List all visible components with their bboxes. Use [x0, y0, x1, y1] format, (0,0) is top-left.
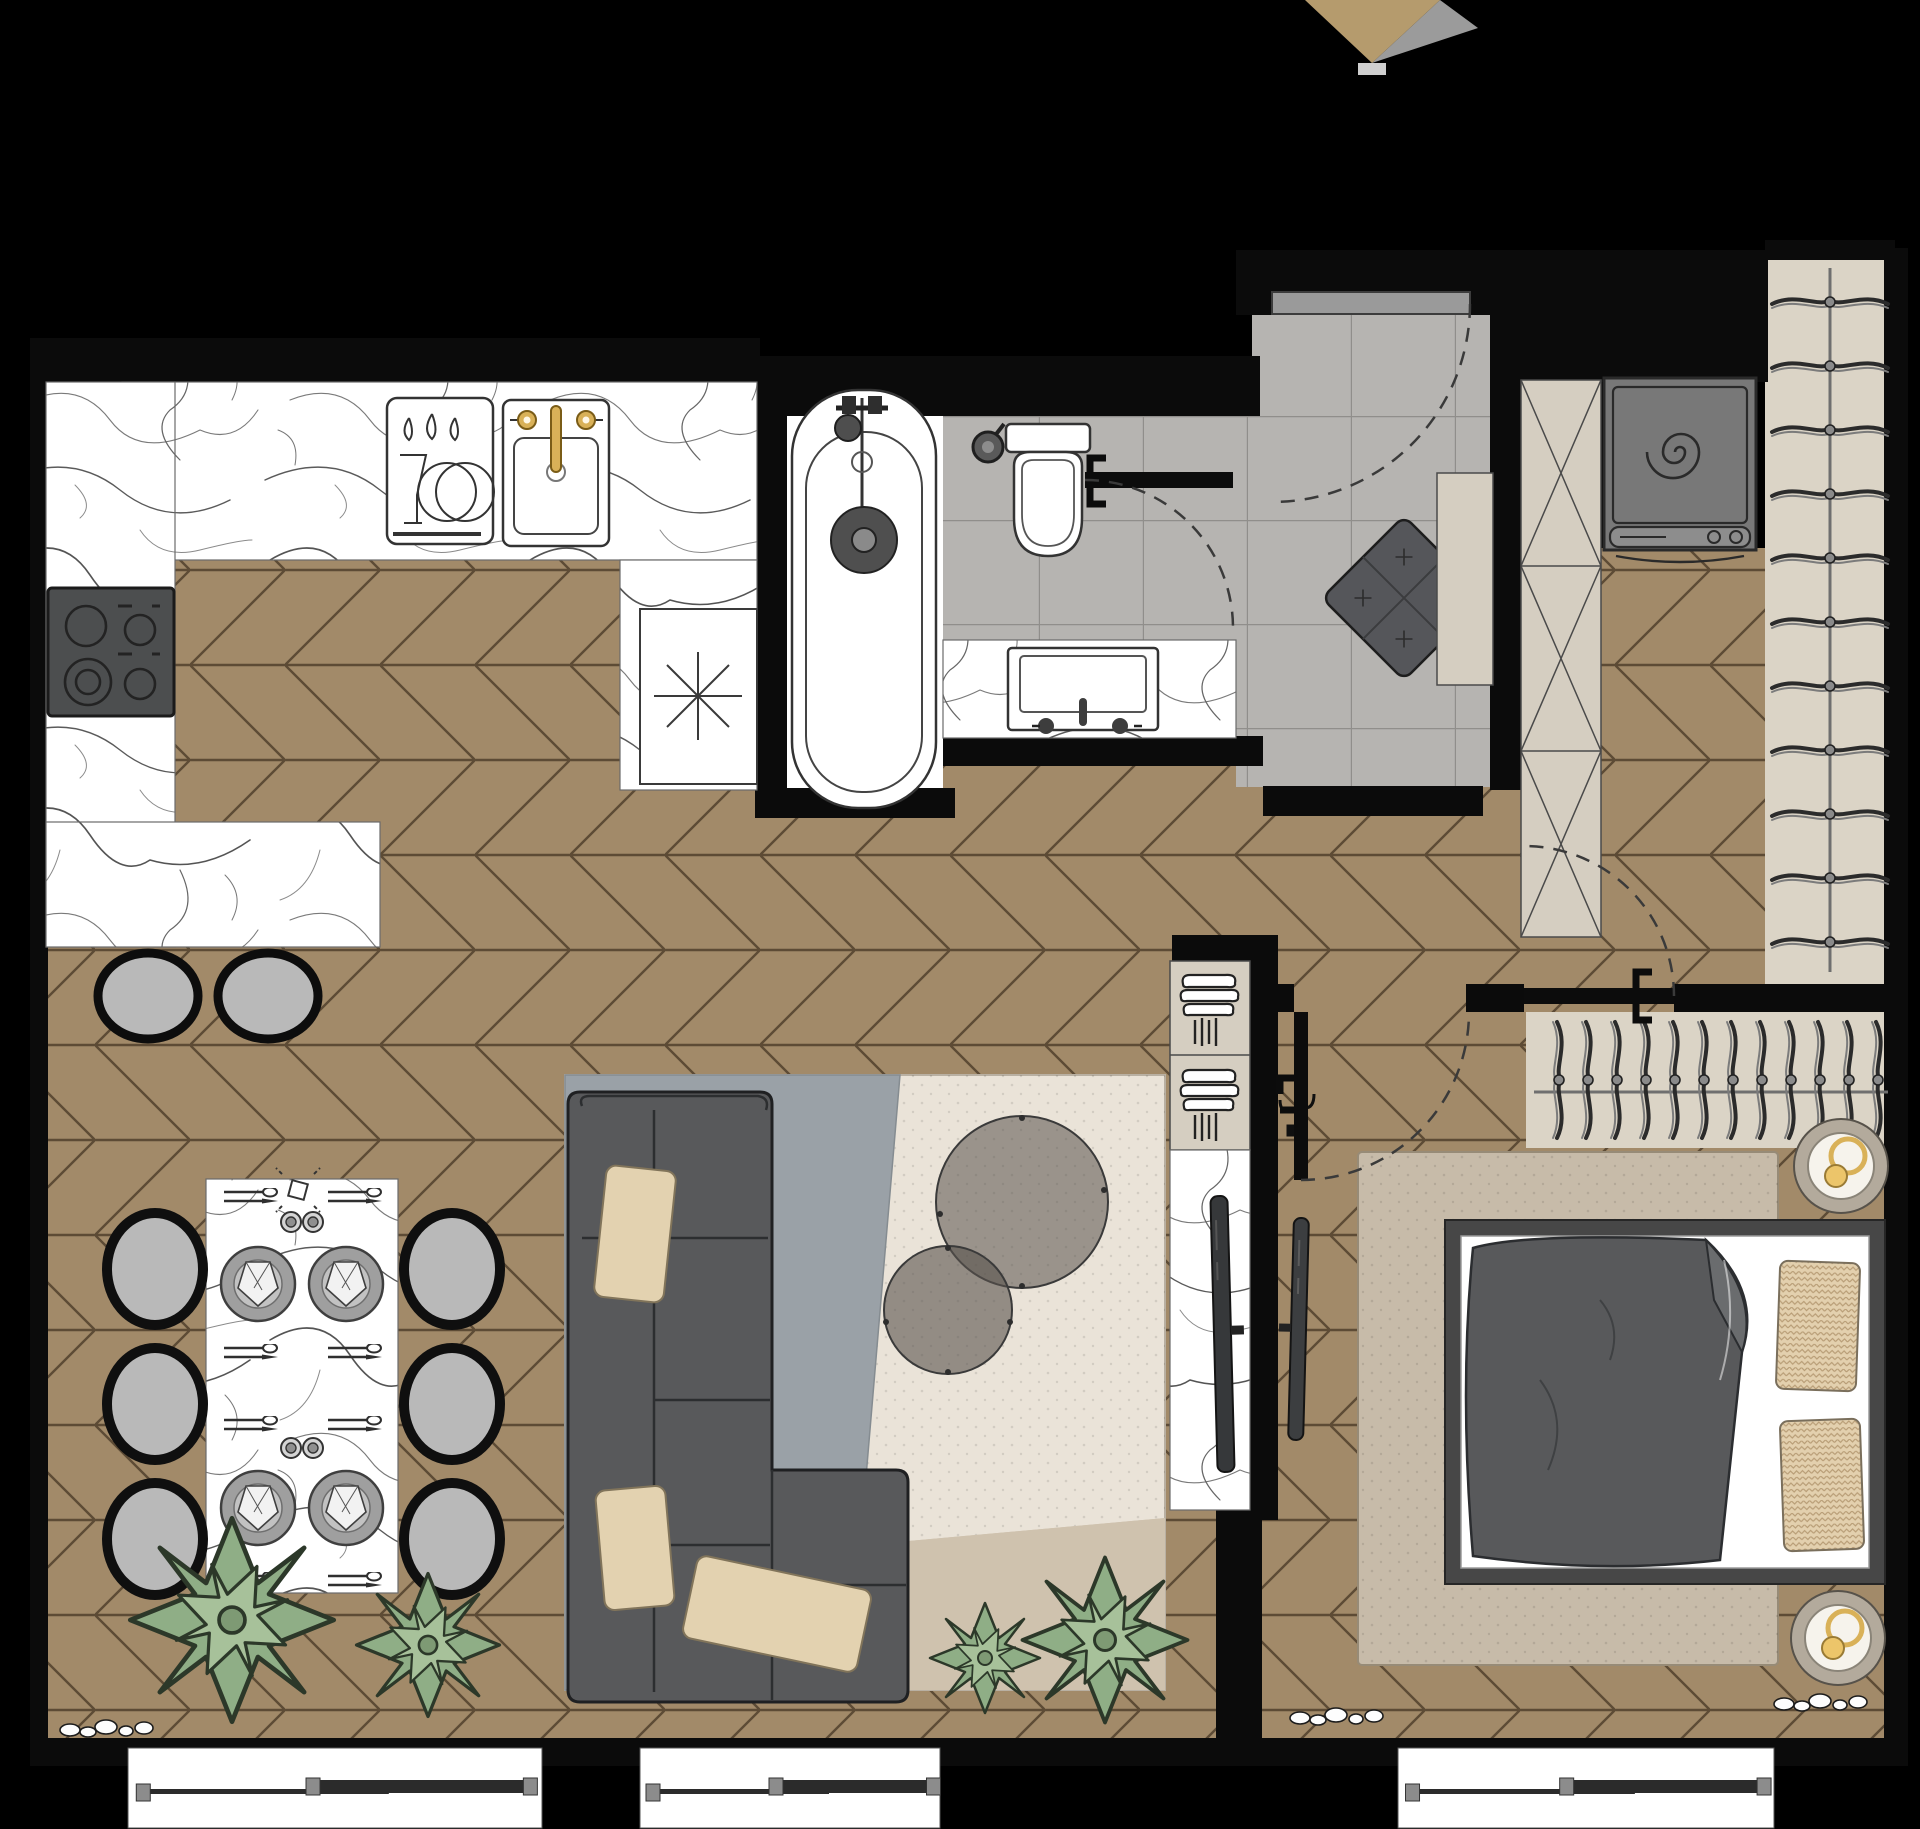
plant-icon	[1023, 1558, 1188, 1723]
dining-chair	[404, 1483, 500, 1595]
sink-icon	[503, 400, 609, 546]
bedside-lamp-icon	[1794, 1119, 1888, 1213]
bedside-lamp-icon	[1791, 1591, 1885, 1685]
kitchen-cabinet-asterisk	[640, 609, 757, 784]
floor-plan	[0, 0, 1920, 1829]
floor-wardrobe-room	[1601, 548, 1765, 958]
window-frame-cap	[769, 1778, 783, 1795]
plant-icon	[357, 1574, 500, 1717]
bed-duvet	[1466, 1237, 1747, 1566]
toilet-icon	[1006, 424, 1090, 556]
tv-wall-shelf	[1170, 961, 1250, 1150]
bed-pillow	[1780, 1419, 1864, 1552]
plant-icon	[930, 1603, 1040, 1713]
dining-chair	[404, 1213, 500, 1325]
dish-rack-icon	[387, 398, 494, 544]
place-setting-icon	[309, 1247, 383, 1321]
bar-stool	[98, 953, 198, 1039]
dining-chair	[107, 1213, 203, 1325]
bed-pillow	[1776, 1261, 1860, 1392]
window-sash	[1563, 1780, 1762, 1793]
place-setting-icon	[221, 1247, 295, 1321]
entry-console	[1437, 473, 1493, 685]
entry-door	[1272, 292, 1470, 314]
washing-machine-icon	[1604, 378, 1756, 562]
hob-icon	[48, 588, 174, 716]
bathtub-icon	[792, 390, 936, 808]
window	[1398, 1748, 1774, 1828]
bed	[1445, 1220, 1885, 1584]
floor-entry-vestibule	[1252, 315, 1492, 381]
window-sash	[310, 1780, 529, 1793]
kitchen-peninsula	[46, 822, 380, 947]
window-frame-cap	[1757, 1778, 1771, 1795]
plant-icon	[130, 1518, 334, 1722]
window	[640, 1748, 941, 1828]
asterisk-icon	[654, 652, 742, 740]
window-sash	[772, 1780, 931, 1793]
bar-stool	[218, 953, 318, 1039]
window-frame-cap	[927, 1778, 941, 1795]
wardrobe-x-cabinets	[1521, 380, 1601, 937]
bathroom-vanity	[943, 640, 1236, 738]
window	[128, 1748, 542, 1828]
place-setting-icon	[309, 1471, 383, 1545]
floor-plan-canvas	[0, 0, 1920, 1829]
window-frame-cap	[136, 1784, 150, 1801]
window-frame-cap	[646, 1784, 660, 1801]
window-frame-cap	[1406, 1784, 1420, 1801]
window-frame-cap	[306, 1778, 320, 1795]
location-marker-icon	[1305, 0, 1478, 75]
dining-chair	[404, 1348, 500, 1460]
window-frame-cap	[523, 1778, 537, 1795]
window-frame-cap	[1560, 1778, 1574, 1795]
dining-chair	[107, 1348, 203, 1460]
